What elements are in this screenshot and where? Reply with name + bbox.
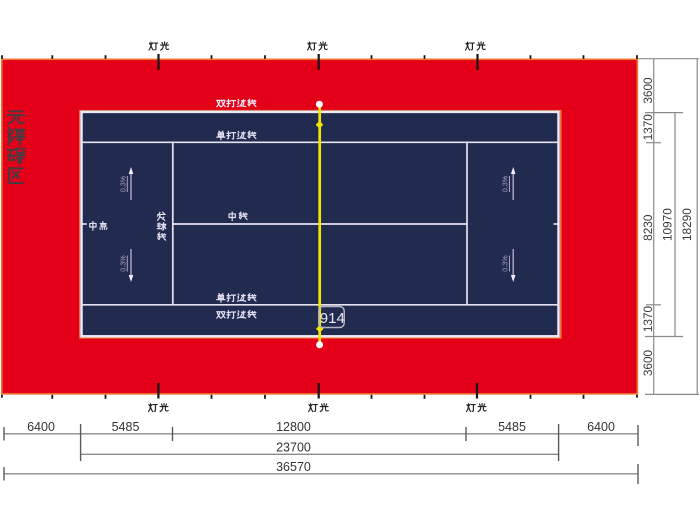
svg-text:914: 914: [320, 310, 345, 327]
svg-text:3600: 3600: [641, 77, 655, 104]
svg-text:36570: 36570: [276, 460, 311, 474]
svg-text:0.3%: 0.3%: [501, 175, 510, 192]
svg-text:1370: 1370: [641, 114, 655, 141]
svg-text:18290: 18290: [680, 208, 694, 241]
svg-text:10970: 10970: [661, 208, 675, 241]
svg-text:0.3%: 0.3%: [118, 175, 127, 192]
svg-text:6400: 6400: [27, 420, 55, 434]
svg-text:0.3%: 0.3%: [118, 255, 127, 272]
svg-text:23700: 23700: [276, 440, 311, 454]
svg-text:3600: 3600: [641, 349, 655, 376]
svg-text:1370: 1370: [641, 305, 655, 332]
svg-text:5485: 5485: [498, 420, 526, 434]
svg-text:5485: 5485: [112, 420, 140, 434]
svg-text:8230: 8230: [641, 214, 655, 241]
svg-text:6400: 6400: [587, 420, 615, 434]
svg-text:12800: 12800: [276, 420, 311, 434]
svg-text:0.3%: 0.3%: [501, 255, 510, 272]
